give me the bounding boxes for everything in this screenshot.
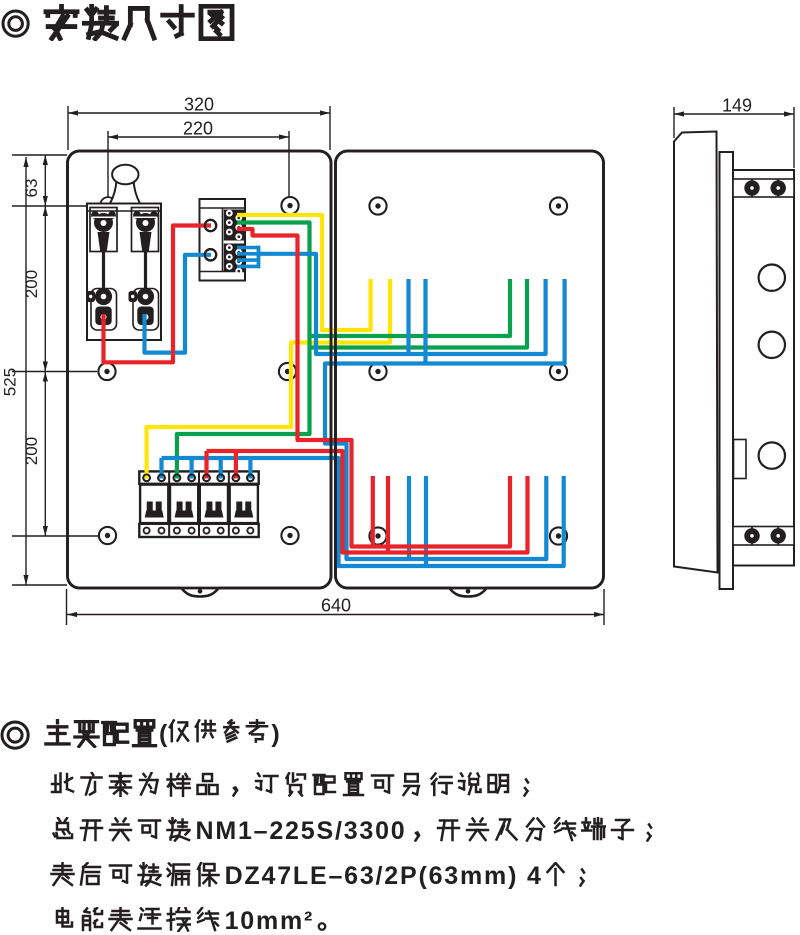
svg-text:63: 63 [22,179,41,198]
svg-text:149: 149 [722,96,752,116]
svg-text:640: 640 [321,596,351,616]
svg-text:200: 200 [22,270,41,298]
svg-text:320: 320 [184,95,214,115]
svg-text:200: 200 [22,437,41,465]
svg-text:220: 220 [183,119,213,139]
